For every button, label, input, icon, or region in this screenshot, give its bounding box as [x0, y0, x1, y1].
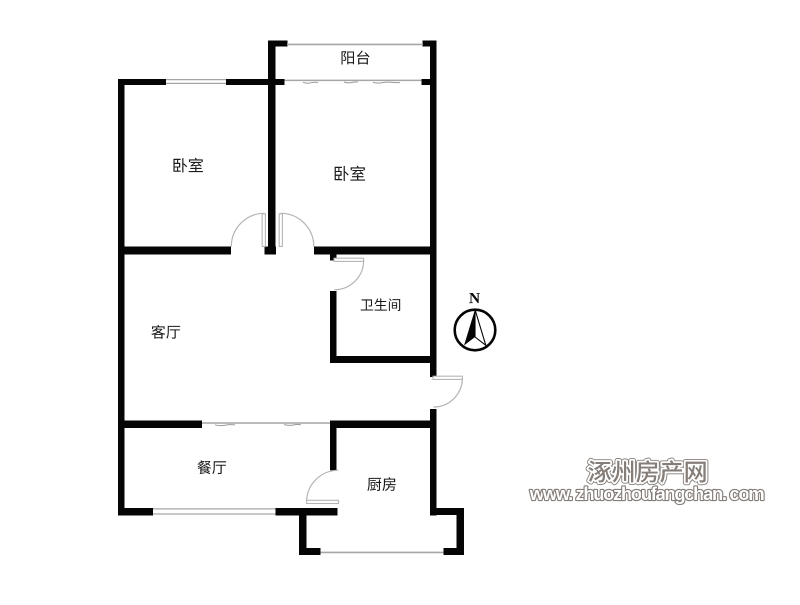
svg-text:www. zhuozhoufangchan. com: www. zhuozhoufangchan. com: [529, 483, 765, 504]
